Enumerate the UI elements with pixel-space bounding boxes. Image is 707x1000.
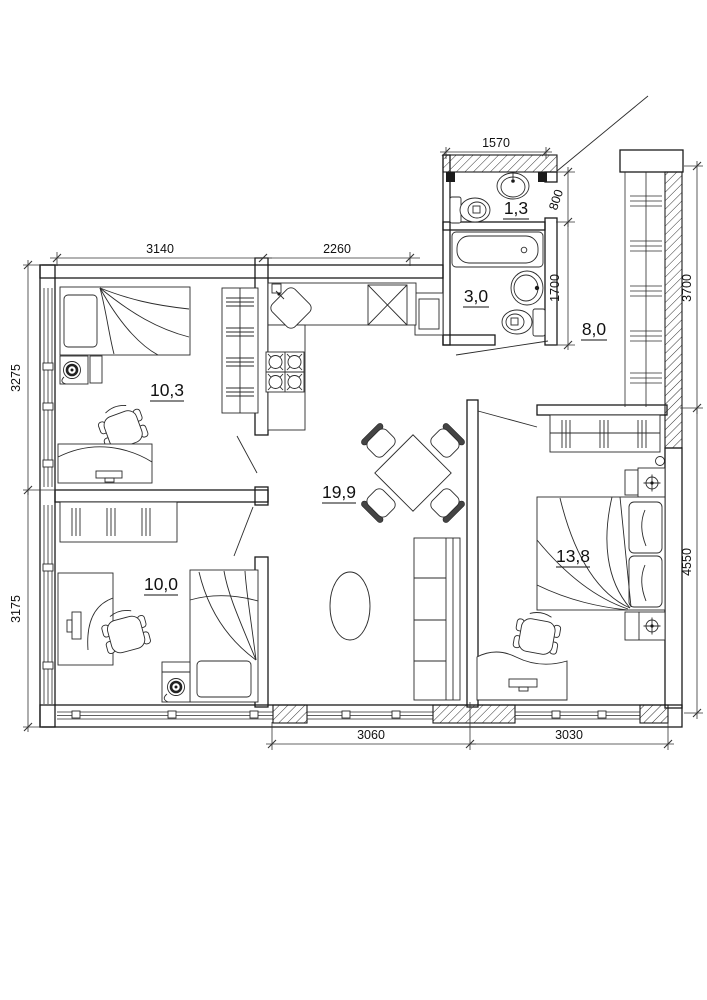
- bedroom-top-left-door-leaf: [237, 436, 257, 473]
- nightstand-icon: [625, 612, 665, 640]
- single-bed-icon: [60, 287, 190, 355]
- bathtub-icon: [452, 232, 543, 267]
- room-label-bathroom: 3,0: [464, 286, 489, 306]
- dining-table-icon: [360, 422, 466, 524]
- entry-door-leaf: [557, 96, 648, 171]
- bedroom-right-door-leaf: [478, 411, 537, 427]
- room-label-bedroom-top-left: 10,3: [150, 380, 184, 400]
- nightstand-icon: [60, 356, 102, 384]
- fridge-icon: [368, 285, 407, 325]
- room-label-bedroom-bottom-left: 10,0: [144, 574, 178, 594]
- dim-wc-width: 1570: [482, 136, 510, 150]
- room-label-living-kitchen: 19,9: [322, 482, 356, 502]
- room-label-wc: 1,3: [504, 198, 528, 218]
- single-bed-icon: [190, 570, 258, 702]
- wardrobe-icon: [60, 502, 177, 542]
- floor-plan-page: 1570 3140 2260 3275 3175 800 1700 3700 4…: [0, 0, 707, 1000]
- dim-bedroom-right-height: 4550: [680, 548, 694, 576]
- kitchen: [266, 283, 416, 430]
- stove-icon: [266, 352, 304, 392]
- nightstand-icon: [625, 468, 665, 497]
- bedroom-bottom-left-door-leaf: [234, 507, 253, 556]
- wardrobe-icon: [550, 415, 660, 452]
- washing-machine-icon: [415, 293, 443, 335]
- dim-wc-height: 800: [546, 188, 566, 212]
- dim-loggia-height: 3700: [680, 274, 694, 302]
- bathroom-toilet-icon: [502, 309, 545, 336]
- dim-left-lower: 3175: [9, 595, 23, 623]
- room-label-hall: 8,0: [582, 319, 607, 339]
- dim-bedroom-top-width: 3140: [146, 242, 174, 256]
- wc-sink-icon: [497, 173, 529, 199]
- office-chair-icon: [512, 609, 562, 657]
- dim-kitchen-width: 2260: [323, 242, 351, 256]
- toilet-icon: [450, 197, 490, 223]
- bedroom-bottom-left-furniture: [58, 502, 258, 702]
- bathroom-sink-icon: [511, 271, 543, 305]
- living-room-furniture: [330, 422, 466, 700]
- dim-left-upper: 3275: [9, 364, 23, 392]
- nightstand-icon: [162, 662, 190, 702]
- dim-bottom-left: 3060: [357, 728, 385, 742]
- desk-icon: [58, 573, 113, 665]
- dim-bathroom-height: 1700: [548, 274, 562, 302]
- bathroom-door-leaf: [456, 341, 548, 355]
- desk-icon: [477, 652, 567, 700]
- dim-bottom-right: 3030: [555, 728, 583, 742]
- room-label-bedroom-right: 13,8: [556, 546, 590, 566]
- wardrobe-icon: [222, 288, 258, 413]
- floor-plan-drawing: 1570 3140 2260 3275 3175 800 1700 3700 4…: [0, 0, 707, 1000]
- tv-unit-icon: [414, 538, 460, 700]
- desk-icon: [58, 444, 152, 483]
- rug-icon: [330, 572, 370, 640]
